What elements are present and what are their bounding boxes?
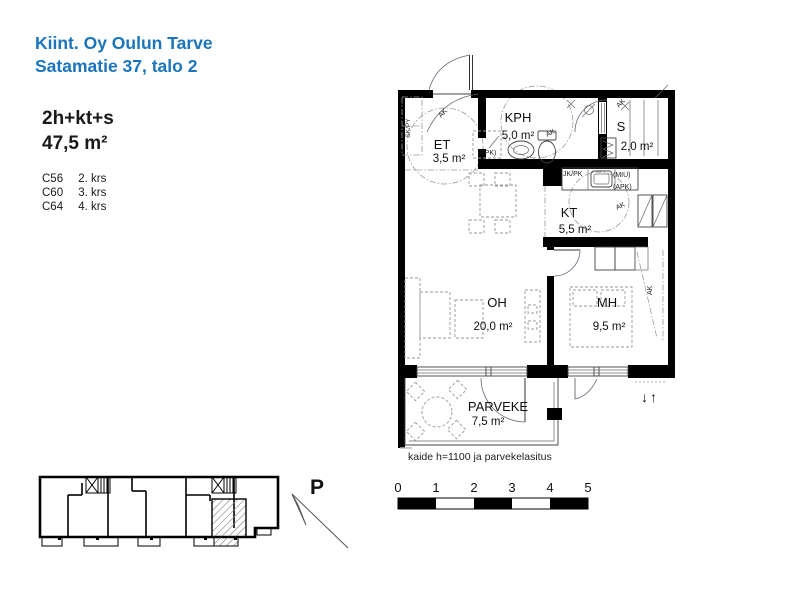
ak-label: AK: [615, 98, 627, 110]
room-label-et: ET: [434, 137, 451, 152]
bathroom: (PPK) KPH 5,0 m² AK: [473, 100, 595, 163]
miu-label: (MIU): [613, 172, 631, 179]
scale-tick: 0: [394, 480, 401, 495]
company-name: Kiint. Oy Oulun Tarve: [35, 32, 213, 55]
unit-list: C56 2. krs C60 3. krs C64 4. krs: [42, 172, 106, 214]
living-room: OH 20,0 m²: [405, 173, 540, 358]
ak-label: AK: [545, 128, 557, 138]
tv-stand-icon: [525, 290, 540, 342]
stair-direction-arrows: ↓↑: [641, 389, 659, 405]
apartment-area: 47,5 m²: [42, 131, 114, 156]
sofa-icon: [405, 278, 483, 358]
scale-bar: 0 1 2 3 4 5: [390, 478, 595, 518]
bedroom: AK MH 9,5 m²: [570, 247, 654, 347]
unit-floor: 3. krs: [78, 187, 106, 199]
jkpk-label: JK/PK: [563, 171, 583, 178]
sauna: AK S 2,0 m²: [601, 98, 658, 158]
unit-row: C60 3. krs: [42, 186, 106, 200]
room-area-parveke: 7,5 m²: [472, 416, 505, 428]
room-area-kt: 5,5 m²: [559, 224, 592, 236]
sheet-header: Kiint. Oy Oulun Tarve Satamatie 37, talo…: [35, 32, 213, 78]
unit-row: C56 2. krs: [42, 172, 106, 186]
unit-floor: 4. krs: [78, 201, 106, 213]
unit-id: C56: [42, 172, 75, 186]
washbasin-icon: [508, 141, 534, 159]
stair-core-icon: [86, 477, 110, 493]
room-area-mh: 9,5 m²: [593, 321, 626, 333]
room-label-mh: MH: [597, 295, 617, 310]
north-arrow-icon: P: [288, 468, 358, 553]
balcony-note: kaide h=1100 ja parvekelasitus: [408, 451, 552, 463]
room-label-kph: KPH: [505, 110, 532, 125]
ppk-label: (PPK): [478, 150, 497, 157]
ak-label: AK: [615, 201, 627, 211]
floor-plan-drawing: SK/PY AK ET 3,5 m² (PPK) KPH: [385, 40, 685, 470]
patio-table-icon: [406, 380, 466, 440]
site-key-plan: [38, 465, 288, 565]
north-label: P: [310, 476, 324, 499]
unit-id: C60: [42, 186, 75, 200]
ak-label: AK: [647, 285, 654, 295]
street-address: Satamatie 37, talo 2: [35, 55, 213, 78]
scale-tick: 5: [584, 480, 591, 495]
dining-set-icon: [469, 173, 516, 233]
scale-tick: 1: [432, 480, 439, 495]
unit-floor: 2. krs: [78, 173, 106, 185]
kph-door: [478, 100, 607, 152]
skpy-label: SK/PY: [405, 118, 412, 138]
kitchen: JK/PK (MIU) (APK) AK KT 5,5 m²: [559, 168, 667, 236]
window-mh: [568, 365, 628, 378]
floor-plan-sheet: Kiint. Oy Oulun Tarve Satamatie 37, talo…: [0, 0, 800, 600]
floor-drain-icon: [567, 100, 575, 108]
room-area-kph: 5,0 m²: [502, 130, 535, 142]
unit-id: C64: [42, 200, 75, 214]
apartment-type: 2h+kt+s: [42, 106, 114, 131]
entry-room: SK/PY AK ET 3,5 m²: [402, 97, 465, 165]
room-label-parveke: PARVEKE: [468, 399, 529, 414]
room-label-oh: OH: [487, 295, 507, 310]
apk-label: (APK): [613, 184, 632, 191]
room-area-oh: 20,0 m²: [474, 321, 513, 333]
room-label-s: S: [617, 119, 626, 134]
highlighted-unit: [212, 499, 246, 537]
scale-tick: 2: [470, 480, 477, 495]
entrance-door: [427, 55, 478, 132]
room-label-kt: KT: [561, 205, 578, 220]
scale-tick: 3: [508, 480, 515, 495]
apartment-summary: 2h+kt+s 47,5 m²: [42, 106, 114, 156]
ak-label: AK: [437, 108, 449, 120]
unit-row: C64 4. krs: [42, 200, 106, 214]
window-oh: [417, 365, 527, 378]
room-area-et: 3,5 m²: [433, 153, 466, 165]
room-area-s: 2,0 m²: [621, 141, 654, 153]
scale-tick: 4: [546, 480, 553, 495]
stair-core-icon: [212, 477, 236, 493]
balcony: PARVEKE 7,5 m²: [400, 378, 562, 448]
closet-icons: [638, 195, 667, 227]
